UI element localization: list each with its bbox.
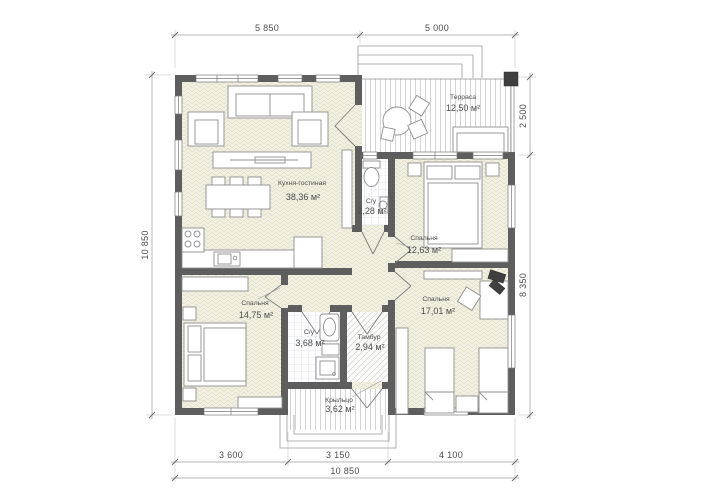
nightstand [183,388,196,401]
room-label-bedroom-bottom: Спальня [422,296,450,303]
window [363,152,377,159]
dresser [238,397,282,408]
dim-bottom-1: 3 600 [219,450,243,460]
dimension-right: 2 500 8 350 [518,73,533,419]
terrace-bench [453,127,508,152]
window [175,96,182,114]
room-label-bedroom-right: Спальня [410,235,438,242]
window [175,140,182,170]
dining-table [206,177,270,217]
room-area-bedroom-bottom: 17,01 м² [421,306,455,316]
toilet-icon [363,161,380,187]
dim-top-2: 5 000 [425,23,449,33]
room-label-bedroom-left: Спальня [241,300,269,307]
room-label-kitchen-living: Кухня-гостиная [278,180,326,187]
dim-right-1: 2 500 [518,104,528,128]
room-label-terrace: Терраса [450,94,476,101]
room-area-bedroom-right: 12,63 м² [407,245,441,255]
room-area-porch: 3,62 м² [325,404,354,414]
window [413,152,457,159]
armchair [292,112,328,146]
single-bed [479,348,508,413]
room-area-terrace: 12,50 м² [446,103,480,113]
bath-sink-icon [320,314,339,341]
window [508,185,515,228]
armchair [188,112,224,146]
dim-top-1: 5 850 [255,23,279,33]
nightstand [183,307,196,320]
cabinet [342,150,352,228]
dimension-left: 10 850 [140,71,155,419]
tv-console [213,152,311,168]
room-area-bathroom: 3,68 м² [295,338,324,348]
room-area-kitchen-living: 38,36 м² [286,192,320,202]
nightstand [408,163,421,176]
window [316,75,340,82]
dimension-bottom-total: 10 850 [171,466,519,481]
dim-bottom-3: 4 100 [439,450,463,460]
single-bed [425,348,454,413]
nightstand [456,396,478,412]
window [196,75,258,82]
wardrobe [182,277,248,291]
window [175,192,182,216]
room-area-wc-small: 2,28 м² [357,206,386,216]
wardrobe [396,328,408,414]
window [473,152,503,159]
dimension-bottom: 3 600 3 150 4 100 [171,450,519,465]
window [508,315,515,368]
room-label-bathroom: С/у [304,329,315,336]
dim-bottom-total: 10 850 [330,466,359,476]
floor-plan-drawing: Терраса 12,50 м² Кухня-гостиная 38,36 м²… [0,0,710,502]
shelf [424,271,482,279]
room-label-tambour: Тамбур [357,333,380,341]
window [278,75,302,82]
shower-icon [316,357,339,379]
dim-right-2: 8 350 [518,273,528,297]
window [204,408,258,415]
room-label-porch: Крыльцо [325,397,353,404]
room-area-bedroom-left: 14,75 м² [239,310,273,320]
terrace-chair [381,127,395,141]
dim-bottom-2: 3 150 [326,450,350,460]
room-area-tambour: 2,94 м² [355,342,384,352]
room-label-wc-small: С/у [366,198,377,205]
floor-plan-canvas: Терраса 12,50 м² Кухня-гостиная 38,36 м²… [0,0,710,502]
terrace-pillar [504,72,518,86]
dim-left-total: 10 850 [140,230,150,259]
dresser [452,249,508,262]
double-bed [184,323,246,386]
kitchen-sink [214,252,240,266]
nightstand [486,163,499,176]
stove [182,228,204,252]
dimension-top: 5 850 5 000 [171,23,519,38]
terrace-steps [358,46,482,78]
